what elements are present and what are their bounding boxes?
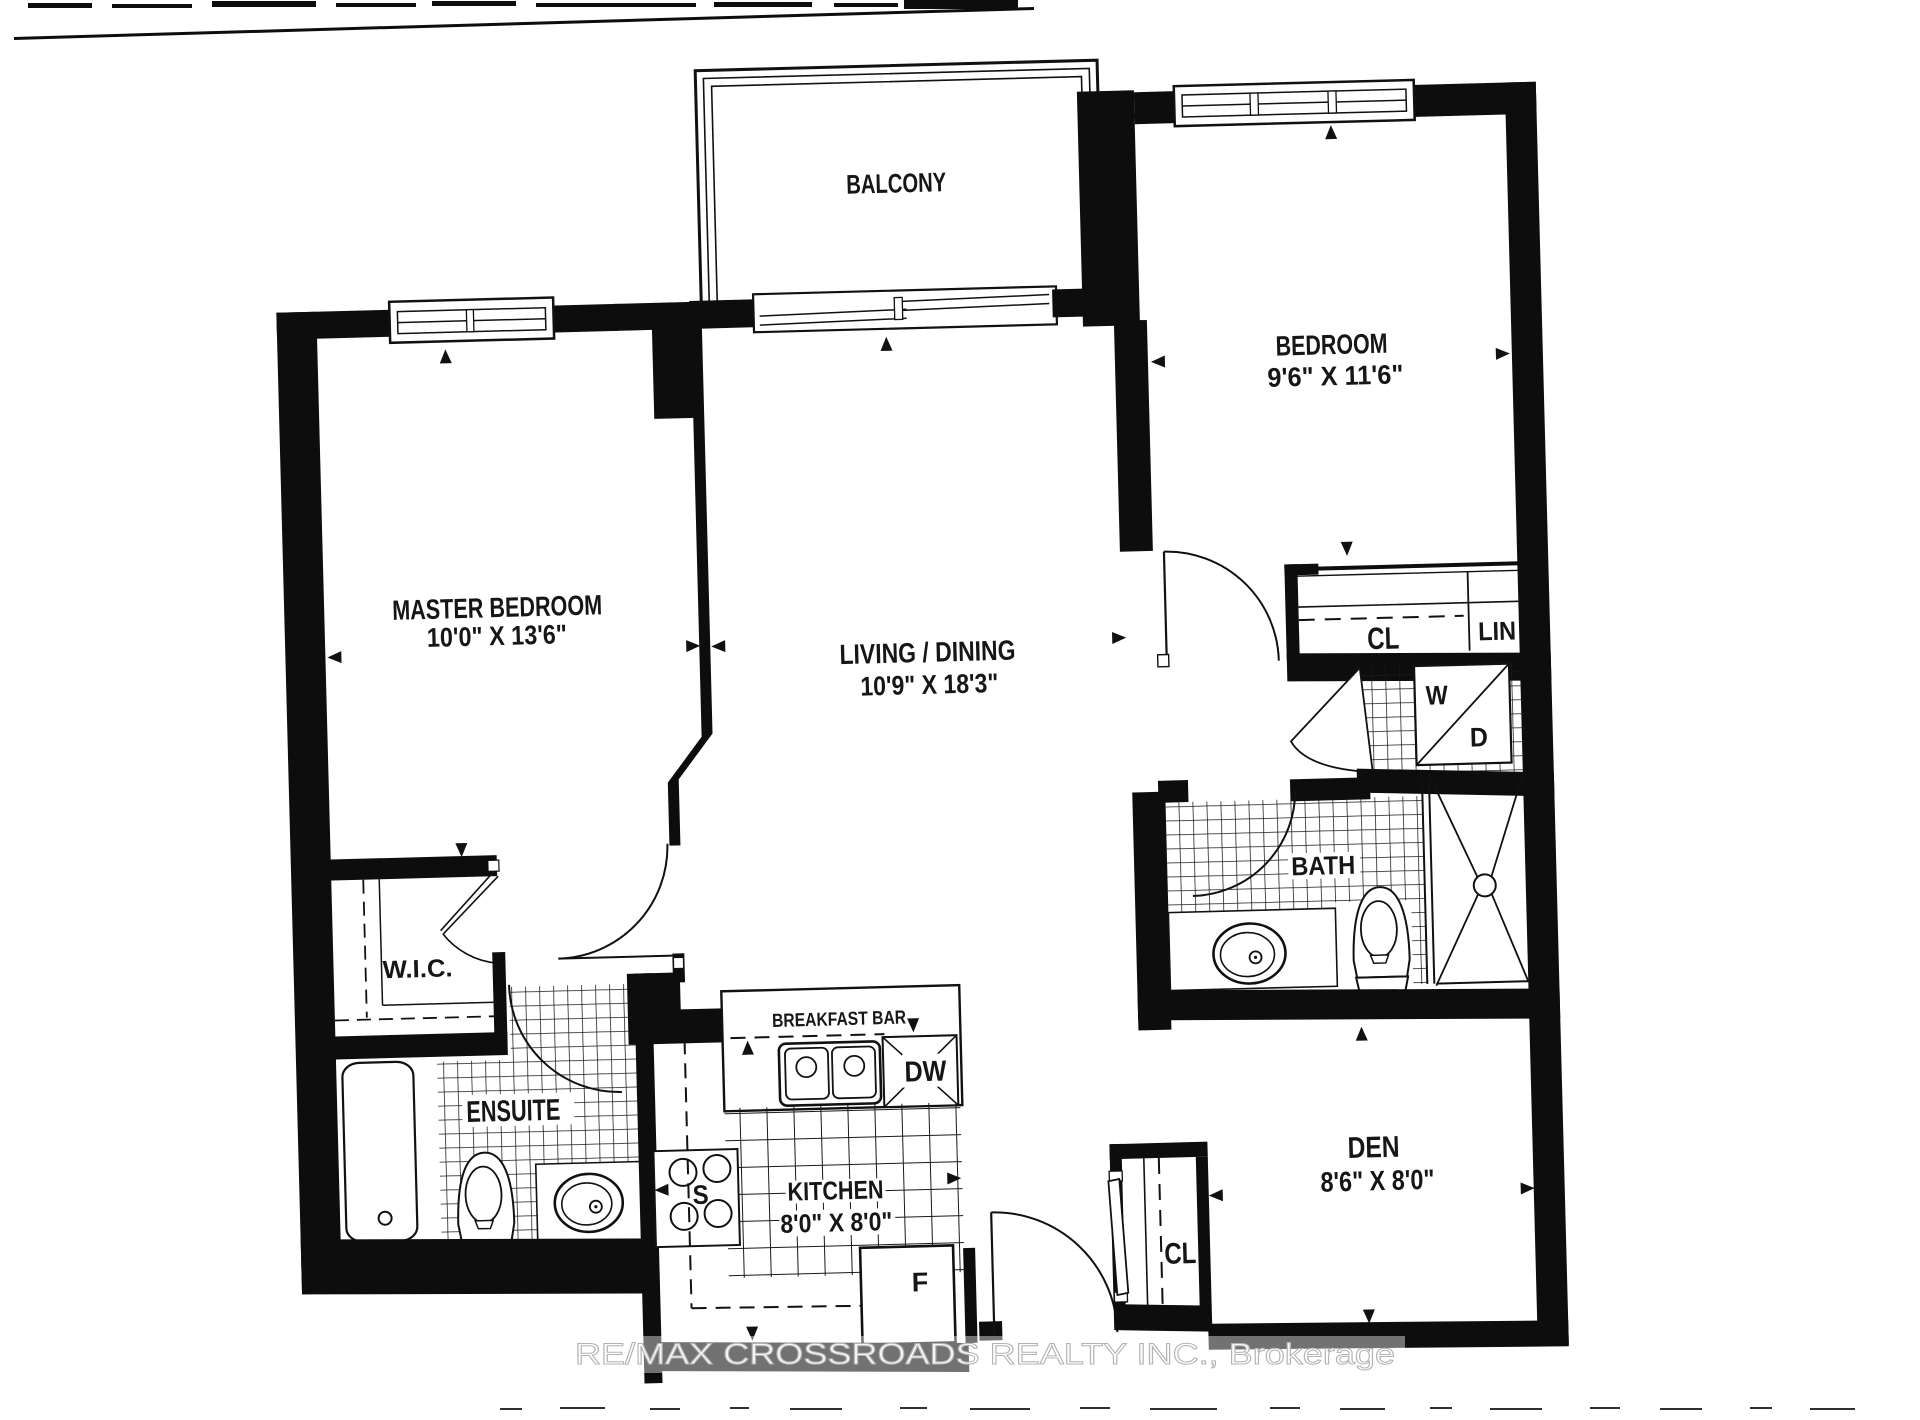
svg-text:RE/MAX CROSSROADS REALTY INC.,: RE/MAX CROSSROADS REALTY INC., Brokerage bbox=[575, 1338, 1395, 1371]
